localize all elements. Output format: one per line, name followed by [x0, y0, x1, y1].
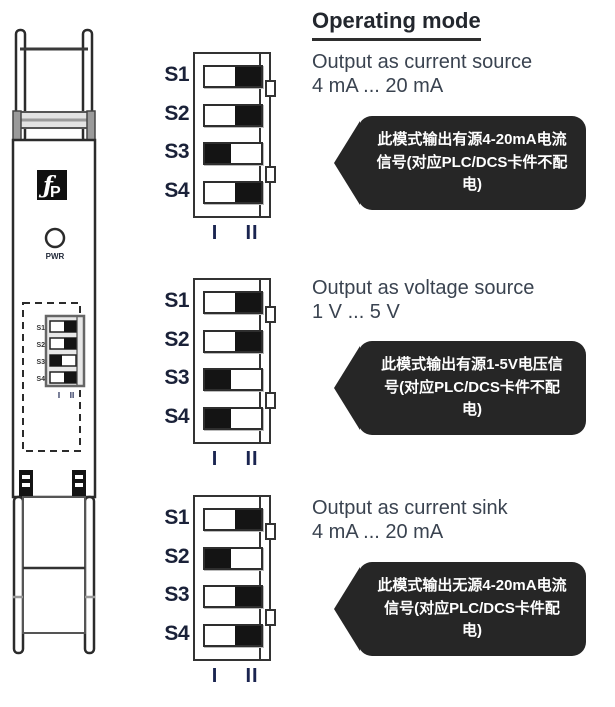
dip-switch-housing	[193, 495, 271, 661]
annotation-callout-current-sink: 此模式输出无源4-20mA电流 信号(对应PLC/DCS卡件配 电)	[358, 562, 586, 656]
position-labels: I II	[155, 222, 305, 246]
page: ƒ P PWR	[0, 0, 615, 707]
section-title-current-source: Output as current source 4 mA ... 20 mA	[312, 50, 602, 98]
pepperl-fuchs-logo: ƒ P	[37, 170, 67, 201]
switch-label: S3	[155, 583, 189, 607]
dip-switch-s3	[203, 142, 263, 165]
dip-switch-s2	[203, 547, 263, 570]
dip-switch-s3	[203, 368, 263, 391]
module-drawing: ƒ P PWR	[0, 0, 115, 707]
section-title-voltage-source: Output as voltage source 1 V ... 5 V	[312, 276, 602, 324]
callout-text-line: 信号(对应PLC/DCS卡件不配	[368, 152, 576, 175]
section-title-line: Output as voltage source	[312, 276, 602, 300]
switch-label: S2	[155, 328, 189, 352]
top-bracket	[13, 30, 95, 142]
callout-text-line: 号(对应PLC/DCS卡件不配	[368, 377, 576, 400]
section-title-line: Output as current source	[312, 50, 602, 74]
section-range-line: 1 V ... 5 V	[312, 300, 602, 324]
position-labels: I II	[155, 448, 305, 472]
switch-knob	[235, 587, 261, 606]
dip-switch-s2	[203, 330, 263, 353]
switch-knob	[235, 332, 261, 351]
dip-switch-housing	[193, 278, 271, 444]
dip-switch-housing	[193, 52, 271, 218]
switch-knob	[235, 183, 261, 202]
mini-switch-label: S1	[36, 325, 45, 332]
mini-switch-label: S4	[36, 376, 45, 383]
switch-label: S1	[155, 506, 189, 530]
mini-switch-label: S2	[36, 342, 45, 349]
dip-switch-s1	[203, 291, 263, 314]
mini-switch-label: S3	[36, 359, 45, 366]
callout-text-line: 此模式输出有源4-20mA电流	[368, 129, 576, 152]
switch-label: S4	[155, 179, 189, 203]
housing-notch	[265, 523, 276, 540]
switch-knob	[205, 370, 231, 389]
callout-text-line: 电)	[368, 174, 576, 197]
switch-knob	[205, 549, 231, 568]
switch-label: S1	[155, 289, 189, 313]
mini-position-label-i: I	[58, 391, 60, 400]
section-title-current-sink: Output as current sink 4 mA ... 20 mA	[312, 496, 602, 544]
position-labels: I II	[155, 665, 305, 689]
switch-label: S3	[155, 366, 189, 390]
switch-label: S4	[155, 622, 189, 646]
housing-notch	[265, 166, 276, 183]
switch-knob	[205, 144, 231, 163]
position-label-ii: II	[239, 222, 265, 245]
switch-label: S4	[155, 405, 189, 429]
position-label-i: I	[206, 222, 224, 245]
dip-switch-s3	[203, 585, 263, 608]
callout-text-line: 电)	[368, 399, 576, 422]
position-label-ii: II	[239, 448, 265, 471]
position-label-i: I	[206, 665, 224, 688]
annotation-callout-voltage-source: 此模式输出有源1-5V电压信 号(对应PLC/DCS卡件不配 电)	[358, 341, 586, 435]
switch-knob	[235, 293, 261, 312]
annotation-callout-current-source: 此模式输出有源4-20mA电流 信号(对应PLC/DCS卡件不配 电)	[358, 116, 586, 210]
switch-knob	[235, 67, 261, 86]
callout-text-line: 电)	[368, 620, 576, 643]
switch-knob	[235, 626, 261, 645]
housing-notch	[265, 609, 276, 626]
callout-text-line: 此模式输出有源1-5V电压信	[368, 354, 576, 377]
switch-knob	[235, 510, 261, 529]
dip-switch-s1	[203, 508, 263, 531]
dip-switch-s1	[203, 65, 263, 88]
dip-switch-panel-current-source: S1 S2 S3 S4 I II	[155, 52, 305, 252]
pwr-label: PWR	[46, 252, 65, 261]
dip-switch-s4	[203, 181, 263, 204]
dip-switch-s4	[203, 407, 263, 430]
section-title-line: Output as current sink	[312, 496, 602, 520]
position-label-i: I	[206, 448, 224, 471]
mini-dip-switch-s4	[50, 372, 76, 383]
switch-label: S1	[155, 63, 189, 87]
operating-mode-heading: Operating mode	[312, 8, 481, 41]
position-label-ii: II	[239, 665, 265, 688]
switch-label: S2	[155, 102, 189, 126]
switch-knob	[205, 409, 231, 428]
svg-text:P: P	[50, 184, 61, 201]
housing-notch	[265, 80, 276, 97]
mini-dip-switch-s2	[50, 338, 76, 349]
switch-label: S3	[155, 140, 189, 164]
mini-dip-switch-s3	[50, 355, 76, 366]
housing-notch	[265, 306, 276, 323]
dip-switch-s2	[203, 104, 263, 127]
housing-notch	[265, 392, 276, 409]
dip-switch-panel-voltage-source: S1 S2 S3 S4 I II	[155, 278, 305, 478]
dip-switch-s4	[203, 624, 263, 647]
callout-text-line: 此模式输出无源4-20mA电流	[368, 575, 576, 598]
callout-text-line: 信号(对应PLC/DCS卡件配	[368, 598, 576, 621]
pwr-led	[46, 229, 64, 247]
mini-position-label-ii: II	[70, 391, 74, 400]
dip-switch-panel-current-sink: S1 S2 S3 S4 I II	[155, 495, 305, 695]
bottom-bracket	[13, 470, 95, 653]
section-range-line: 4 mA ... 20 mA	[312, 520, 602, 544]
switch-knob	[235, 106, 261, 125]
section-range-line: 4 mA ... 20 mA	[312, 74, 602, 98]
switch-label: S2	[155, 545, 189, 569]
mini-dip-switch-s1	[50, 321, 76, 332]
